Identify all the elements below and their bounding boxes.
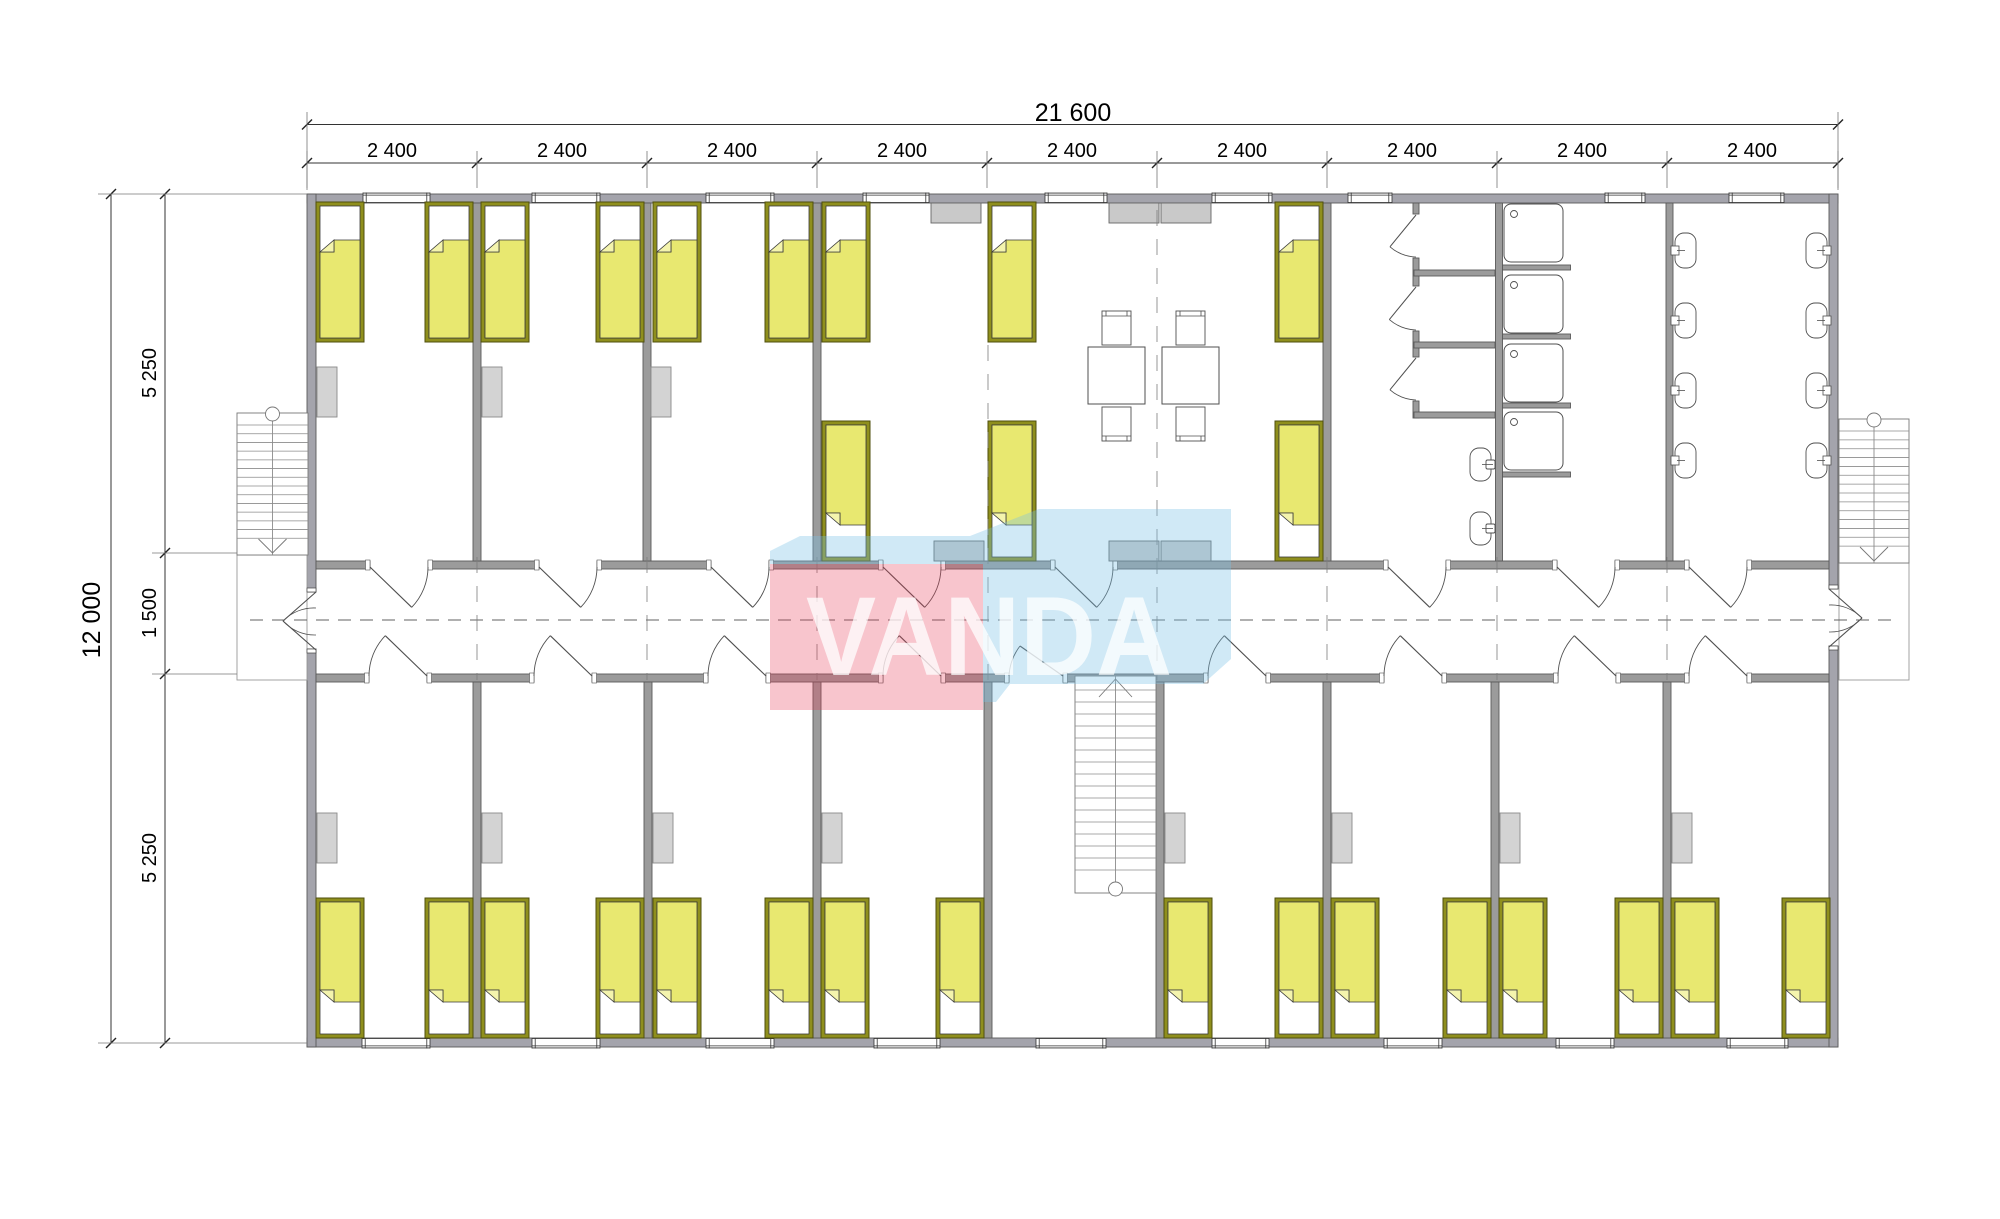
svg-text:2 400: 2 400: [367, 140, 417, 162]
svg-text:2 400: 2 400: [1727, 140, 1777, 162]
svg-text:21 600: 21 600: [1035, 99, 1111, 127]
svg-text:2 400: 2 400: [707, 140, 757, 162]
svg-text:2 400: 2 400: [1387, 140, 1437, 162]
svg-text:2 400: 2 400: [1047, 140, 1097, 162]
svg-text:VANDA: VANDA: [806, 574, 1172, 699]
svg-text:2 400: 2 400: [1557, 140, 1607, 162]
svg-text:2 400: 2 400: [877, 140, 927, 162]
svg-text:5 250: 5 250: [139, 833, 161, 883]
svg-text:12 000: 12 000: [78, 582, 106, 658]
svg-text:5 250: 5 250: [139, 348, 161, 398]
svg-text:1 500: 1 500: [139, 588, 161, 638]
svg-text:2 400: 2 400: [1217, 140, 1267, 162]
svg-text:2 400: 2 400: [537, 140, 587, 162]
